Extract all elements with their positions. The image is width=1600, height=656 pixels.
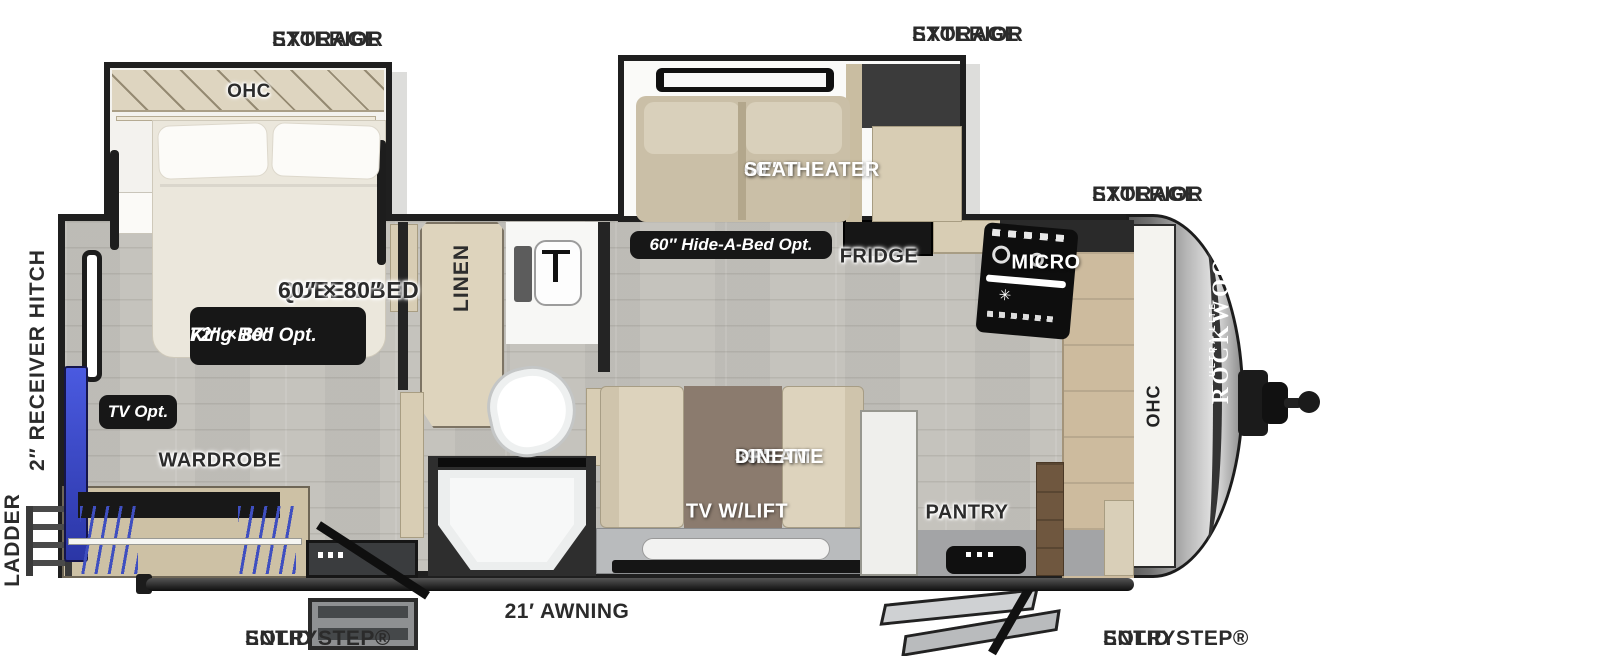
entry-left-line2: ENTRY	[245, 626, 318, 652]
theater-cabinet-interior	[856, 64, 960, 128]
dinette-line3: DINETTE	[735, 446, 824, 469]
pantry-cabinet	[860, 410, 918, 576]
pillow-left	[157, 122, 269, 180]
range-cooktop: ✳	[975, 222, 1078, 340]
tv-lift-label: TV W/LIFT	[686, 500, 788, 525]
exterior-storage-rear-line2: STORAGE	[272, 27, 379, 53]
rv-floorplan: ✳ EXTERIOR STORAGE EXTERIOR STORAGE EXTE…	[0, 0, 1600, 656]
micro-label: MICRO	[1011, 251, 1080, 276]
exterior-storage-front-line2: STORAGE	[1092, 182, 1199, 208]
kitchen-drawers	[1036, 462, 1064, 576]
bath-wall-right	[598, 222, 610, 372]
hitch-ball	[1298, 391, 1320, 413]
tv-panel	[612, 560, 872, 573]
kitchen-sink	[946, 546, 1026, 574]
bedroom-window-left	[110, 150, 119, 250]
shower-door	[438, 458, 586, 467]
theater-backrest-left	[644, 102, 740, 154]
steps-left-tread1	[318, 606, 408, 618]
wardrobe-rod	[68, 538, 302, 545]
dinette-bench-left	[600, 386, 684, 528]
entry-hardware-left	[318, 552, 348, 558]
king-bed-option-badge: 72″ × 80″ King Bed Opt.	[190, 307, 366, 365]
ladder-label: LADDER	[1, 493, 25, 587]
pantry-label: PANTRY	[926, 501, 1009, 526]
burner-star: ✳	[998, 286, 1020, 308]
kitchen-cabinet-corner	[1104, 500, 1134, 576]
theater-backrest-right	[746, 102, 842, 154]
hide-a-bed-option-badge: 60″ Hide-A-Bed Opt.	[630, 231, 832, 259]
receiver-hitch-label: 2″ RECEIVER HITCH	[26, 249, 50, 471]
bath-wall-left	[398, 222, 408, 390]
bath-door-left	[400, 392, 424, 538]
theater-window-glass	[664, 73, 826, 87]
king-bed-line2: King Bed Opt.	[190, 324, 317, 348]
bedroom-slide-shadow	[392, 72, 407, 215]
theater-seat-line2: SEAT	[744, 158, 798, 183]
oven-handle	[986, 274, 1066, 288]
bed-fold-line	[160, 184, 378, 187]
queen-bed-line2: 60″ × 80″	[278, 276, 382, 305]
pillow-right	[271, 122, 381, 180]
entry-right-line2: ENTRY	[1103, 626, 1176, 652]
burner-large	[991, 245, 1011, 265]
sink-faucet	[966, 552, 996, 557]
theater-slide-shadow	[966, 64, 980, 215]
brand-tagline-text: ULTRA LITE	[1208, 301, 1217, 377]
exterior-storage-mid-line2: STORAGE	[912, 22, 1019, 48]
linen-label: LINEN	[450, 244, 474, 312]
rear-window	[82, 250, 102, 382]
toilet-tank	[514, 246, 532, 302]
awning-label: 21′ AWNING	[505, 599, 630, 625]
oven-knobs	[987, 311, 1055, 323]
brand-tagline: ULTRA LITE	[1208, 355, 1217, 404]
shower-pan-inner	[450, 478, 574, 562]
awning-rail	[146, 578, 1134, 591]
tv-option-badge: TV Opt.	[99, 395, 177, 429]
theater-side-cabinet	[872, 126, 962, 222]
front-ohc-label: OHC	[1144, 385, 1165, 428]
tv-soundbar	[642, 538, 830, 560]
fridge-label: FRIDGE	[840, 245, 919, 270]
range-vent-slots	[992, 229, 1068, 243]
toilet-mark	[553, 252, 558, 282]
wardrobe-label: WARDROBE	[159, 449, 282, 474]
bedroom-ohc-label: OHC	[227, 80, 271, 104]
